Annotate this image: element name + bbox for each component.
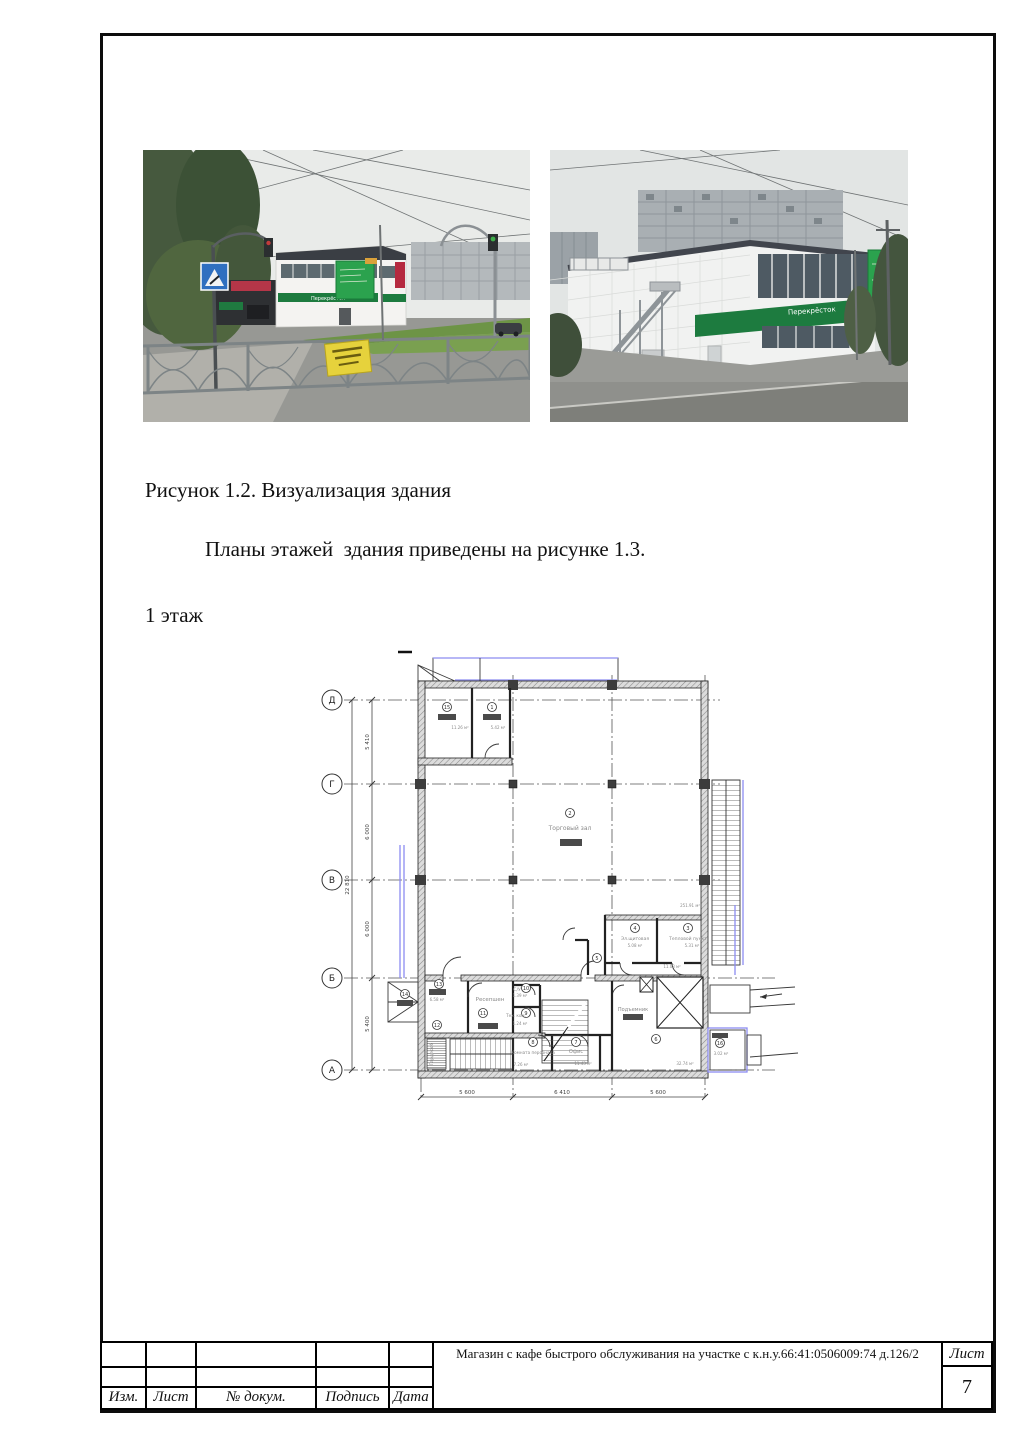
figure-caption: Рисунок 1.2. Визуализация здания	[145, 477, 451, 503]
distant-buildings	[411, 242, 530, 300]
floor-plan: Д Г В Б А 5 410 6 000 6 000 5 400 22 810…	[320, 645, 804, 1127]
entrance-canopy	[398, 652, 618, 682]
svg-text:5.42 м²: 5.42 м²	[491, 725, 506, 730]
svg-text:Комната персонала: Комната персонала	[511, 1050, 555, 1055]
ad-banner-green	[336, 261, 374, 299]
body-paragraph: Планы этажей здания приведены на рисунке…	[205, 536, 645, 562]
dim-text: 6 410	[554, 1090, 570, 1096]
doc-title: Магазин с кафе быстрого обслуживания на …	[434, 1343, 941, 1362]
columns	[509, 780, 616, 884]
blue-accent-lines	[400, 845, 735, 978]
document-page: { "captions": { "figure": "Рисунок 1.2. …	[0, 0, 1024, 1448]
dim-text: 5 600	[650, 1090, 666, 1096]
svg-text:12: 12	[434, 1023, 440, 1029]
dimension-bottom: 5 600 6 410 5 600	[418, 1090, 708, 1100]
store-building: Перекрёсток	[276, 246, 406, 327]
svg-text:13: 13	[436, 982, 442, 988]
svg-text:Ресепшен: Ресепшен	[476, 997, 505, 1003]
svg-text:7: 7	[574, 1040, 577, 1046]
axis-label: Д	[328, 696, 335, 706]
axis-label: В	[329, 876, 335, 886]
svg-text:4: 4	[633, 926, 636, 932]
tb-col-list-label: Лист	[147, 1388, 195, 1406]
tb-doc-title-cell: Магазин с кафе быстрого обслуживания на …	[432, 1341, 943, 1410]
tb-col-ndoc-label: № докум.	[197, 1388, 315, 1406]
dim-text: 6 000	[365, 921, 371, 937]
svg-text:2: 2	[568, 811, 571, 817]
dim-total-text: 22 810	[345, 875, 351, 895]
svg-text:Гардероб: Гардероб	[429, 1042, 435, 1065]
svg-text:11.26 м²: 11.26 м²	[451, 725, 469, 730]
fire-escape	[708, 780, 798, 1072]
svg-text:1: 1	[490, 705, 493, 711]
svg-text:15: 15	[444, 705, 450, 711]
tb-col-list: Лист	[145, 1341, 197, 1410]
svg-text:5: 5	[595, 956, 598, 962]
svg-text:16: 16	[717, 1041, 723, 1047]
tb-col-ndoc: № докум.	[195, 1341, 317, 1410]
photo-side-view: Перекрёсток	[550, 150, 908, 422]
svg-text:8: 8	[531, 1040, 534, 1046]
axis-markers: Д Г В Б А	[322, 690, 342, 1080]
svg-text:Подъемник: Подъемник	[618, 1007, 648, 1013]
tb-col-data-label: Дата	[390, 1388, 432, 1406]
tb-col-izm: Изм.	[100, 1341, 147, 1410]
svg-text:11.43 м²: 11.43 м²	[574, 1061, 592, 1066]
svg-text:1.24 м²: 1.24 м²	[513, 1021, 528, 1026]
yellow-sign	[325, 340, 372, 376]
svg-text:11.03 м²: 11.03 м²	[663, 964, 681, 969]
svg-text:7.26 м²: 7.26 м²	[514, 1062, 529, 1067]
svg-text:6.58 м²: 6.58 м²	[430, 997, 445, 1002]
svg-text:1.39 м²: 1.39 м²	[513, 993, 528, 998]
tb-col-izm-label: Изм.	[102, 1388, 145, 1406]
tb-col-podpis: Подпись	[315, 1341, 390, 1410]
red-sign	[395, 262, 405, 288]
svg-text:10: 10	[523, 986, 529, 992]
dim-text: 6 000	[365, 824, 371, 840]
svg-text:32.74 м²: 32.74 м²	[676, 1061, 694, 1066]
svg-text:5.31 м²: 5.31 м²	[685, 943, 700, 948]
dim-text: 5 410	[365, 734, 371, 750]
tb-col-data: Дата	[388, 1341, 434, 1410]
svg-text:11: 11	[480, 1011, 486, 1017]
dim-text: 5 400	[365, 1016, 371, 1032]
sheet-number: 7	[943, 1367, 991, 1408]
axis-label: А	[329, 1066, 336, 1076]
axis-label: Г	[329, 780, 335, 790]
photo-street-view: Перекрёсток	[143, 150, 530, 422]
svg-text:Тех. ком.: Тех. ком.	[505, 1013, 526, 1018]
room-lift	[612, 977, 703, 1071]
total-area-note: 251.91 м²	[680, 903, 700, 908]
tb-col-podpis-label: Подпись	[317, 1388, 388, 1406]
dimension-left: 5 410 6 000 6 000 5 400 22 810	[345, 697, 375, 1073]
entrance-door	[339, 308, 351, 325]
svg-text:Торговый зал: Торговый зал	[548, 825, 592, 832]
svg-text:3: 3	[686, 926, 689, 932]
svg-text:Тепловой пункт: Тепловой пункт	[668, 935, 707, 942]
floor-label: 1 этаж	[145, 602, 203, 628]
svg-text:Эл.щитовая: Эл.щитовая	[621, 936, 649, 942]
sheet-label: Лист	[943, 1343, 991, 1367]
tb-sheet-cell: Лист 7	[941, 1341, 993, 1410]
crosswalk-sign-icon	[201, 263, 228, 290]
svg-text:Офис: Офис	[569, 1049, 583, 1055]
axis-label: Б	[329, 974, 335, 984]
svg-text:3.02 м²: 3.02 м²	[714, 1051, 729, 1056]
dim-text: 5 600	[459, 1090, 475, 1096]
svg-text:5.08 м²: 5.08 м²	[628, 943, 643, 948]
svg-text:14: 14	[402, 992, 408, 998]
svg-text:6: 6	[654, 1037, 657, 1043]
